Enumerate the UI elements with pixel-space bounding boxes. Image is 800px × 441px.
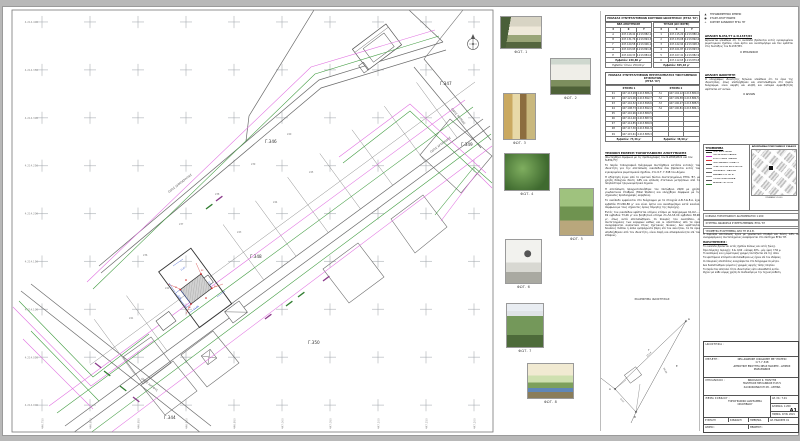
svg-text:447.200: 447.200 — [473, 418, 477, 429]
svg-text:447.050: 447.050 — [329, 418, 333, 429]
svg-text:4.214.350: 4.214.350 — [25, 68, 39, 72]
report-paragraph: Το οικόπεδο εμφαίνεται στο διάγραμμα με … — [605, 199, 700, 209]
architectural-survey-sheet: { "plan": { "northings": ["4.214.400","4… — [0, 0, 800, 441]
svg-text:4.214.150: 4.214.150 — [25, 260, 39, 264]
coordinate-grid — [15, 13, 491, 429]
svg-text:447.150: 447.150 — [425, 418, 429, 429]
svg-text:241: 241 — [129, 317, 134, 320]
drawing-number-cell: ΑΡ. ΣΧ.: Τ-01 — [770, 396, 798, 403]
scale-row: ΣΥΣΤΗΜΑ ΑΝΑΦΟΡΑΣ ΣΥΝΤΕΤΑΓΜΕΝΩΝ: ΕΓΣΑ '87 — [703, 220, 799, 227]
report-paragraph: Εντός του οικοπέδου υφίσταται ισόγειο κτ… — [605, 211, 700, 237]
svg-text:236: 236 — [143, 254, 148, 257]
svg-text:446.750: 446.750 — [41, 418, 45, 429]
svg-text:244: 244 — [273, 201, 278, 204]
subject-parcel-marker — [769, 166, 773, 170]
report-heading: ΤΕΧΝΙΚΗ ΕΚΘΕΣΗ ΤΟΠΟΓΡΑΦΙΚΗΣ ΑΠΟΤΥΠΩΣΗΣ — [605, 151, 700, 155]
svg-text:447.100: 447.100 — [377, 418, 381, 429]
svg-text:9,12: 9,12 — [619, 398, 625, 404]
svg-text:Α: Α — [609, 387, 611, 391]
site-photo-6 — [505, 239, 542, 284]
report-paragraph: Το παρόν τοπογραφικό διάγραμμα συντάχθηκ… — [605, 164, 700, 174]
technical-report: ΤΕΧΝΙΚΗ ΕΚΘΕΣΗ ΤΟΠΟΓΡΑΦΙΚΗΣ ΑΠΟΤΥΠΩΣΗΣ (… — [605, 151, 700, 239]
titleblock-signoff-row: ΣΥΝΤΑΞΗ ΣΧΕΔΙΑΣΗ ΗΜΕΡ/ΝΙΑ ΑΡ. ΕΚΔΟΣΗΣ 01 — [704, 418, 798, 425]
scale-row: ΚΛΙΜΑΚΑ ΤΟΠΟΓΡΑΦΙΚΟΥ ΔΙΑΓΡΑΜΜΑΤΟΣ 1:200 — [703, 213, 799, 220]
site-photo-3 — [503, 93, 536, 140]
table2: ΚΤΙΣΜΑ 1ΚΤΙΣΜΑ 2 Κ1447.113,284.213.886,4… — [605, 85, 700, 142]
note-item: Τα υφιστάμενα κτίσματα αποτυπώθηκαν ως έ… — [703, 256, 799, 259]
title-block: ΙΔΙΟΚΤΗΣΙΑ : ΜΕΛΕΤΗ : ΝΕΑ ΔΙΩΡΟΦΗ ΟΙΚΟΔΟ… — [703, 341, 799, 433]
svg-text:Β: Β — [634, 415, 636, 419]
photo-caption: ΦΩΤ. 7 — [506, 349, 544, 353]
legend-swatch — [706, 180, 712, 181]
svg-text:Γ.349: Γ.349 — [461, 142, 473, 147]
report-paragraph: Η αποτύπωση πραγματοποιήθηκε τον Οκτώβρι… — [605, 188, 700, 198]
site-photo-7 — [506, 303, 544, 348]
svg-text:4.214.400: 4.214.400 — [25, 20, 39, 24]
svg-text:Δ: Δ — [688, 317, 690, 321]
svg-text:446.800: 446.800 — [89, 418, 93, 429]
svg-text:Γ.347: Γ.347 — [440, 81, 452, 86]
site-photo-2 — [550, 58, 591, 95]
report-paragraph: Η εξάρτηση έγινε από το κρατικό δίκτυο σ… — [605, 176, 700, 186]
titleblock-owner-row: ΙΔΙΟΚΤΗΣΙΑ : — [704, 342, 798, 357]
note-item: Το παρόν δεν αποτελεί τίτλο ιδιοκτησίας … — [703, 268, 799, 271]
site-photo-5 — [559, 188, 594, 236]
report-subheading: (Συντάχθηκε σύμφωνα με τις προδιαγραφές … — [605, 156, 700, 162]
keymap-panel: ΑΠΟΣΠΑΣΜΑ ΡΥΜΟΤΟΜΙΚΟΥ ΣΧΕΔΙΟΥ ΚΛΙΜΑΚΑ 1:… — [750, 145, 798, 210]
svg-text:239: 239 — [251, 163, 256, 166]
photo-caption: ΦΩΤ. 5 — [559, 237, 594, 241]
drawing-sheet: 14,82 9,75 12,40 8,96 Κ1 Κ2 Κ3 Κ4 — [2, 6, 799, 436]
svg-text:Ε: Ε — [676, 364, 678, 368]
svg-text:243: 243 — [237, 231, 242, 234]
svg-text:Γ.344: Γ.344 — [164, 415, 176, 420]
svg-text:446.950: 446.950 — [233, 418, 237, 429]
note-item: Το οικόπεδο βρίσκεται εντός σχεδίου πόλε… — [703, 245, 799, 248]
table2-title: ΠΙΝΑΚΑΣ ΣΥΝΤΕΤΑΓΜΕΝΩΝ ΠΕΡΙΓΡΑΜΜΑΤΟΣ ΥΦΙΣ… — [605, 72, 700, 85]
legend-swatch — [706, 172, 712, 173]
svg-text:447.000: 447.000 — [281, 418, 285, 429]
scale-info: ΚΛΙΜΑΚΑ ΤΟΠΟΓΡΑΦΙΚΟΥ ΔΙΑΓΡΑΜΜΑΤΟΣ 1:200Σ… — [703, 213, 799, 235]
note-item: Οι πλευρικές αποστάσεις αναγράφονται στο… — [703, 260, 799, 263]
site-plan: 14,82 9,75 12,40 8,96 Κ1 Κ2 Κ3 Κ4 — [3, 7, 500, 435]
svg-text:240: 240 — [287, 133, 292, 136]
declaration-owner: ΔΗΛΩΣΗ ΙΔΙΟΚΤΗΤΗ Ο υπογράφων ιδιοκτήτης … — [705, 73, 793, 96]
svg-text:4.214.100: 4.214.100 — [25, 307, 39, 311]
svg-text:4.214.050: 4.214.050 — [25, 355, 39, 359]
photo-caption: ΦΩΤ. 8 — [527, 400, 574, 404]
note-item: Όροι δόμησης περιοχής: Σ.Δ. 0,60 - κάλυψ… — [703, 249, 799, 252]
date-cell: ΗΜ/ΝΙΑ: ΙΟΥΝ. 2021 — [770, 411, 798, 418]
scale-cell: ΚΛΙΜΑΚΑ: 1:200 Α1 — [770, 403, 798, 411]
table1-title: ΠΙΝΑΚΑΣ ΣΥΝΤΕΤΑΓΜΕΝΩΝ ΚΟΡΥΦΩΝ ΙΔΙΟΚΤΗΣΙΑ… — [605, 15, 700, 22]
svg-text:238: 238 — [215, 193, 220, 196]
legend-swatch — [706, 152, 712, 153]
svg-text:ΣΚΑΡΙΦΗΜΑ ΙΔΙΟΚΤΗΣΙΑΣ: ΣΚΑΡΙΦΗΜΑ ΙΔΙΟΚΤΗΣΙΑΣ — [634, 297, 669, 301]
legend-and-keymap: ΥΠΟΜΝΗΜΑ ΟΡΙΟ ΙΔΙΟΚΤΗΣΙΑΣ ΟΙΚΟΔΟΜΙΚΗ ΓΡΑ… — [703, 144, 799, 211]
property-sketch: ΣΚΑΡΙΦΗΜΑ ΙΔΙΟΚΤΗΣΙΑΣ Δ Γ Ε Α Β 25,14 30… — [601, 293, 700, 435]
titleblock-project-row: ΜΕΛΕΤΗ : ΝΕΑ ΔΙΩΡΟΦΗ ΟΙΚΟΔΟΜΗ ΜΕ ΥΠΟΓΕΙΟ… — [704, 357, 798, 378]
legend-swatch — [706, 184, 712, 185]
site-photo-8 — [527, 363, 574, 399]
legend-swatch — [706, 168, 712, 169]
svg-text:4.214.000: 4.214.000 — [25, 403, 39, 407]
titleblock-engineer-row: ΜΗΧΑΝΙΚΟΣ : ΝΙΚΟΛΑΟΣ Κ. ΠΟΛΙΤΗΣ ΠΟΛΙΤΙΚΟ… — [704, 378, 798, 396]
svg-text:446.850: 446.850 — [137, 418, 141, 429]
notes-block: Η παρούσα αποτύπωση έγινε με γεωδαιτικό … — [703, 233, 799, 275]
photo-caption: ΦΩΤ. 4 — [504, 192, 550, 196]
note-item: Η οικοδομική και η ρυμοτομική γραμμή ταυ… — [703, 252, 799, 255]
table1-left: ΝΕΑ ΑΠΟΤΥΠΩΣΗ ΣΧΥ Α447.118,424.213.882,1… — [605, 22, 652, 69]
photo-caption: ΦΩΤ. 2 — [550, 96, 591, 100]
declaration-engineer: ΔΗΛΩΣΗ Ν.651/77 & Ν.1337/83 Δηλώνεται υπ… — [705, 34, 793, 54]
svg-text:4.214.300: 4.214.300 — [25, 116, 39, 120]
legend-swatch — [706, 156, 712, 157]
coordinates-tables: ΠΙΝΑΚΑΣ ΣΥΝΤΕΤΑΓΜΕΝΩΝ ΚΟΡΥΦΩΝ ΙΔΙΟΚΤΗΣΙΑ… — [605, 15, 700, 142]
legend: ΥΠΟΜΝΗΜΑ ΟΡΙΟ ΙΔΙΟΚΤΗΣΙΑΣ ΟΙΚΟΔΟΜΙΚΗ ΓΡΑ… — [704, 145, 750, 210]
symbol-key: ▲ ΤΡΙΓΩΝΟΜΕΤΡΙΚΟ ΣΗΜΕΙΟ ● ΣΤΑΣΗ ΑΠΟΤΥΠΩΣ… — [703, 13, 795, 25]
symbol-row: + ΚΟΡΥΦΗ ΚΑΝΝΑΒΟΥ ΕΓΣΑ '87 — [703, 21, 795, 25]
table1-right: ΤΙΤΛΟΣ (ΩΣ ΙΣΧΥΕΙ) ΣΧΥ 1447.115,204.213.… — [653, 22, 700, 69]
note-item: Ισχύει για κάθε νόμιμη χρήση σε συνδυασμ… — [703, 271, 799, 274]
svg-text:30,06: 30,06 — [662, 367, 668, 374]
svg-text:Γ.348: Γ.348 — [250, 254, 262, 259]
svg-text:Γ.346: Γ.346 — [265, 139, 277, 144]
titleblock-subject-row: ΘΕΜΑ ΣΧΕΔΙΟΥ : ΤΟΠΟΓΡΑΦΙΚΟ ΔΙΑΓΡΑΜΜΑ ΟΙΚ… — [704, 396, 798, 418]
titleblock-archive-row: ΑΡΧΕΙΟ : ΘΕΩΡΗΣΗ : — [704, 425, 798, 433]
photo-caption: ΦΩΤ. 1 — [500, 50, 542, 54]
note-item: Δεν διαπιστώθηκαν ρέματα ή γραμμές υψηλή… — [703, 264, 799, 267]
svg-text:242: 242 — [165, 287, 170, 290]
legend-swatch — [706, 176, 712, 177]
legend-item: ΔΕΝΔΡΑ - ΦΥΤΕΥΣΗ — [706, 182, 748, 186]
photo-caption: ΦΩΤ. 6 — [505, 285, 542, 289]
svg-text:446.900: 446.900 — [185, 418, 189, 429]
svg-text:245: 245 — [309, 171, 314, 174]
site-photo-4 — [504, 153, 550, 191]
svg-text:4.214.200: 4.214.200 — [25, 212, 39, 216]
vicinity-map: ΚΛΙΜΑΚΑ 1:1000 — [751, 149, 797, 196]
legend-swatch — [706, 164, 712, 165]
survey-symbol-icon: + — [703, 21, 708, 25]
svg-text:4.214.250: 4.214.250 — [25, 164, 39, 168]
svg-text:237: 237 — [179, 223, 184, 226]
site-photo-1 — [500, 16, 542, 49]
svg-text:Γ.350: Γ.350 — [308, 340, 320, 345]
legend-swatch — [706, 160, 712, 161]
photo-caption: ΦΩΤ. 3 — [503, 141, 536, 145]
